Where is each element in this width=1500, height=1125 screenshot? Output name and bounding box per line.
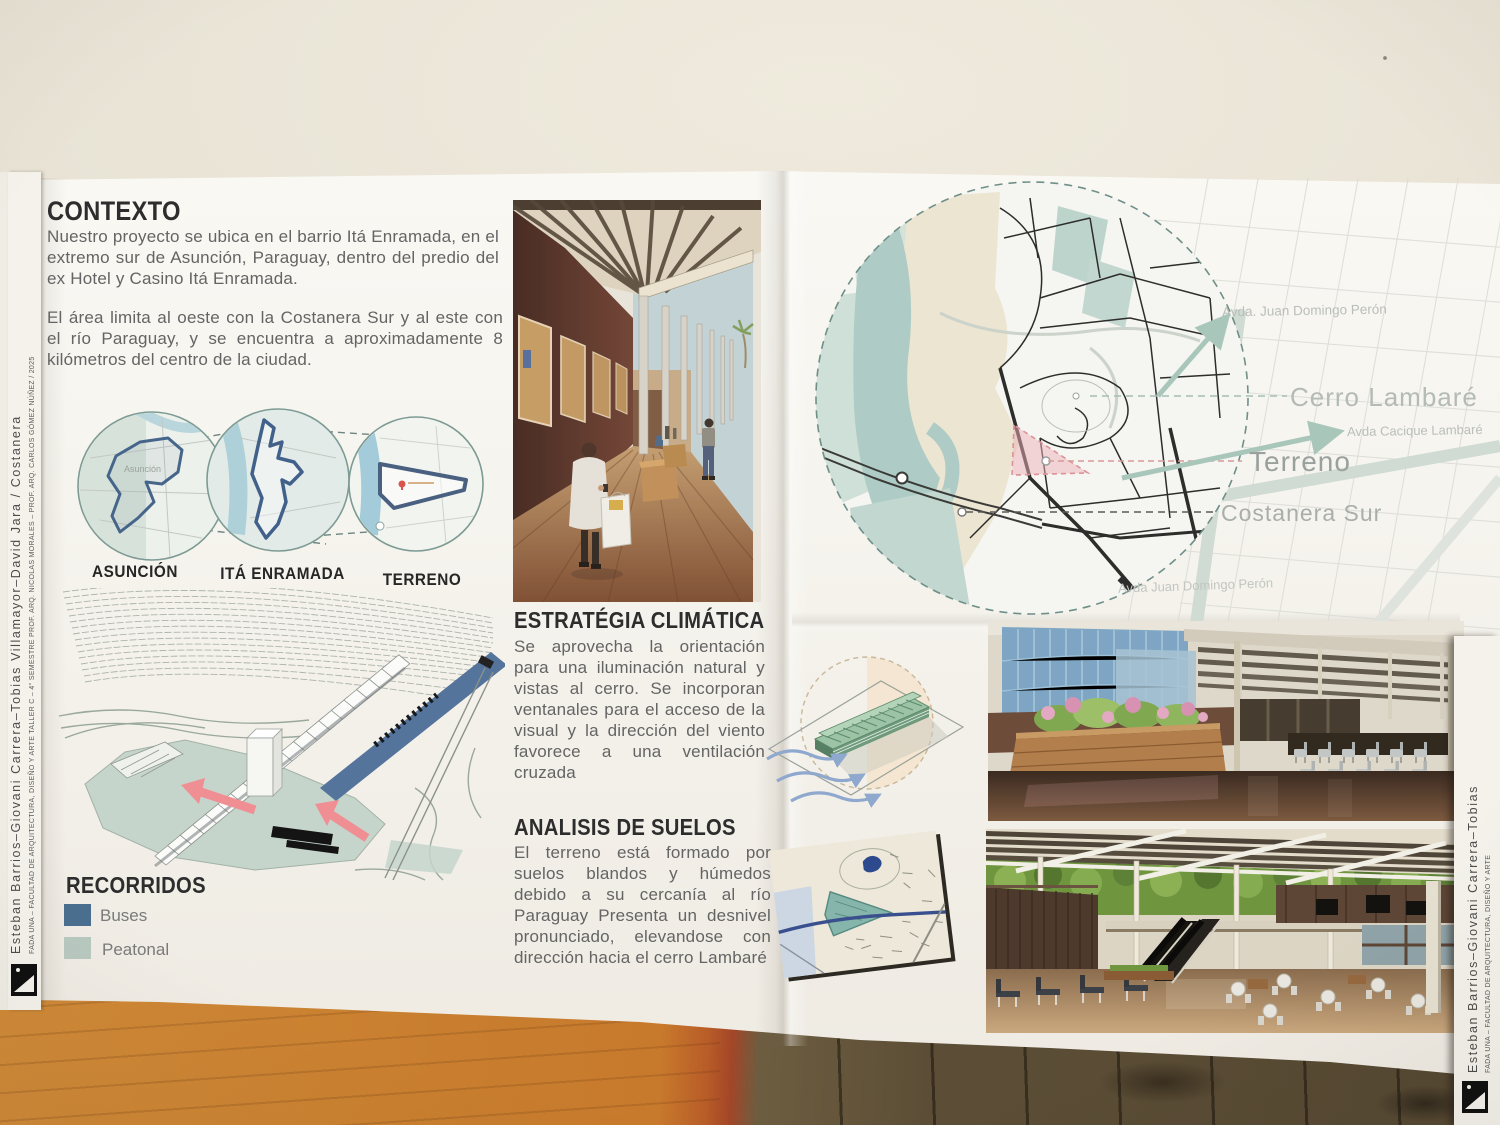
estrategia-title: ESTRATÉGIA CLIMÁTICA [514,607,764,634]
label-ita-enramada: ITÁ ENRAMADA [208,564,357,584]
contexto-paragraph-2: El área limita al oeste con la Costanera… [47,307,503,370]
hall-rendering-figure [986,829,1458,1033]
legend-label-peatonal: Peatonal [102,940,169,960]
right-spine-author-names: Esteban Barrios–Giovani Carrera–Tobias [1466,643,1480,1073]
asuncion-inner-label: Asunción [124,464,161,474]
photo-architecture-presentation-board: CONTEXTO Nuestro proyecto se ubica en el… [0,0,1500,1125]
wood-screen-wall [986,885,1098,981]
terrace-rendering-figure [988,621,1464,821]
contexto-title: CONTEXTO [47,196,181,227]
map-label-terreno: Terreno [1249,446,1351,478]
estrategia-body: Se aprovecha la orientación para una ilu… [514,636,765,784]
map-label-costanera-sur: Costanera Sur [1221,500,1382,527]
site-plan-axonometric-figure [55,588,505,888]
suelos-title: ANALISIS DE SUELOS [514,814,736,841]
contexto-paragraph-1: Nuestro proyecto se ubica en el barrio I… [47,226,499,289]
left-spine-author-names: Esteban Barrios–Giovani Carrera–Tobias V… [9,214,23,954]
left-spine-course-info: FADA UNA – FACULTAD DE ARQUITECTURA, DIS… [29,194,36,954]
soil-analysis-map [757,818,969,1008]
fada-logo-icon [1462,1081,1488,1113]
tower-block [247,729,282,796]
terrain-contour-lines [63,588,493,700]
right-spine-course-info: FADA UNA – FACULTAD DE ARQUITECTURA, DIS… [1485,643,1492,1073]
map-label-avda-cacique: Avda Cacique Lambaré [1347,422,1483,439]
label-terreno: TERRENO [359,570,485,590]
map-label-avda-peron-top: Avda. Juan Domingo Perón [1222,302,1387,320]
location-zoom-circles-figure: Asunción [50,398,510,570]
legend-swatch-peatonal [64,937,91,959]
climate-strategy-diagram [763,641,969,809]
left-board-spine: Esteban Barrios–Giovani Carrera–Tobias V… [8,172,41,1010]
fada-logo-icon [11,964,37,996]
label-asuncion: ASUNCIÓN [72,562,198,582]
map-label-cerro-lambare: Cerro Lambaré [1290,382,1478,413]
corridor-rendering-figure [513,200,761,602]
legend-swatch-buses [64,904,91,926]
recorridos-title: RECORRIDOS [66,872,206,899]
river-water-band [320,652,505,801]
right-board-spine: Esteban Barrios–Giovani Carrera–Tobias F… [1454,636,1500,1125]
suelos-body: El terreno está formado por suelos bland… [514,842,771,968]
legend-label-buses: Buses [100,906,147,926]
